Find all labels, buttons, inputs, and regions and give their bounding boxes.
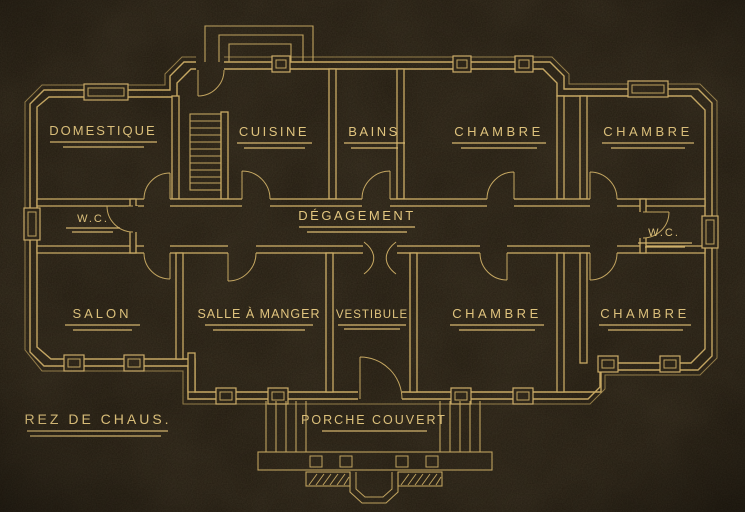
floorplan-photo: DOMESTIQUE CUISINE BAINS CHAMBRE CHAMBRE…	[0, 0, 745, 512]
floorplan-drawing: DOMESTIQUE CUISINE BAINS CHAMBRE CHAMBRE…	[0, 0, 745, 512]
vignette	[0, 0, 745, 512]
